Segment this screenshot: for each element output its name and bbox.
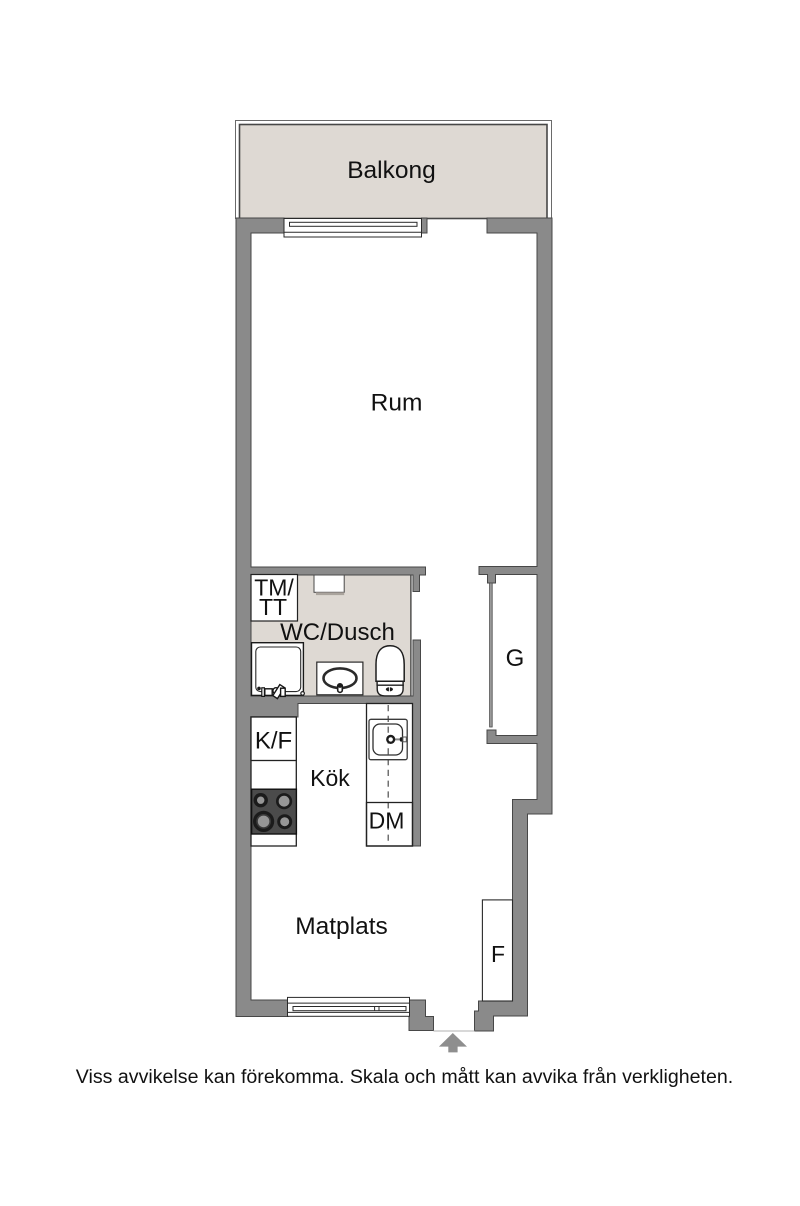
svg-text:Rum: Rum [371, 390, 423, 417]
svg-text:F: F [491, 941, 505, 967]
svg-text:Viss avvikelse kan förekomma.: Viss avvikelse kan förekomma. Skala och … [76, 1066, 733, 1088]
svg-text:Matplats: Matplats [295, 913, 388, 940]
svg-text:WC/Dusch: WC/Dusch [280, 619, 395, 646]
svg-text:G: G [506, 645, 525, 672]
svg-text:DM: DM [369, 808, 405, 834]
svg-text:Balkong: Balkong [347, 157, 436, 184]
svg-text:K/F: K/F [255, 728, 292, 755]
svg-text:Kök: Kök [310, 765, 350, 791]
svg-text:TT: TT [259, 594, 287, 620]
